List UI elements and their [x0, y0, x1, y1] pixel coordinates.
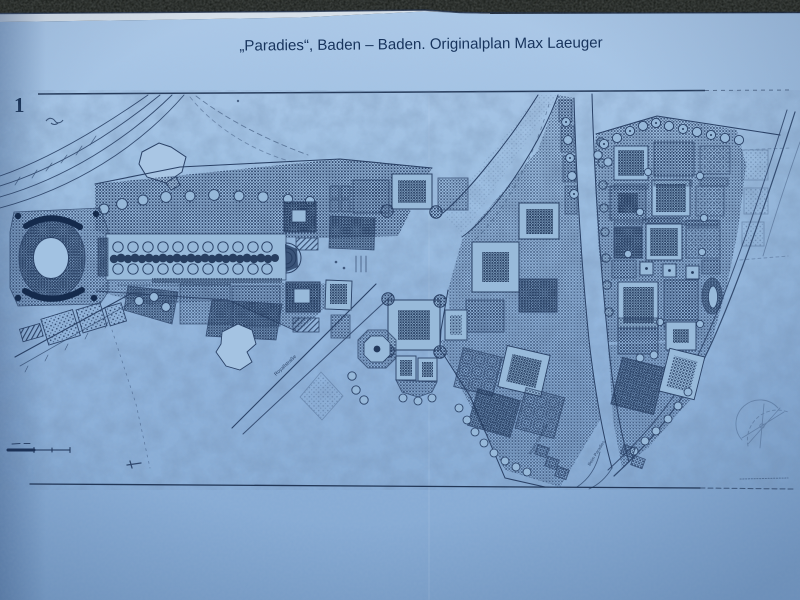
- svg-text:„Paradies“, Baden – Baden. Ori: „Paradies“, Baden – Baden. Originalplan …: [239, 34, 602, 54]
- svg-text:1: 1: [14, 93, 25, 117]
